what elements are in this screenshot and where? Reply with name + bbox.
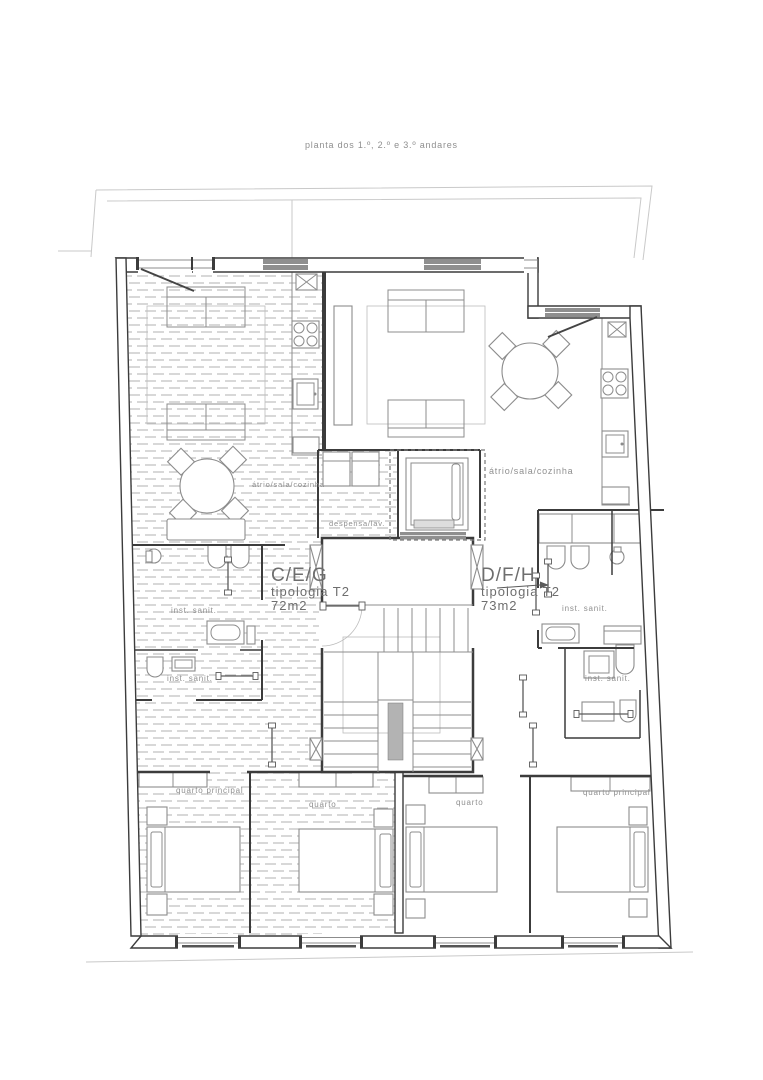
washbasin	[208, 545, 226, 568]
room-label-atrio-left: átrio/sala/cozinha	[252, 480, 325, 489]
window	[561, 934, 625, 949]
apartment-right-units: D/F/H	[481, 565, 536, 586]
room-label-inst-sanit: inst. sanit.	[171, 606, 217, 615]
nightstand	[374, 894, 393, 915]
nightstand	[406, 899, 425, 918]
stair-shaft	[388, 703, 403, 760]
toilet	[147, 657, 163, 677]
room-label-quarto-principal: quarto principal	[176, 786, 244, 795]
apartment-left-units: C/E/G	[271, 565, 328, 586]
apartment-right-area: 73m2	[481, 598, 518, 613]
apartment-right-typology: tipologia T2	[481, 584, 560, 599]
room-label-despensa: despensa/lav.	[329, 519, 385, 528]
cabinet-row	[539, 514, 641, 543]
nightstand	[147, 894, 167, 915]
sideboard	[167, 519, 245, 540]
dining-table	[489, 331, 572, 411]
toilet	[616, 645, 634, 674]
room-label-quarto: quarto	[456, 798, 483, 807]
room-label-atrio-right: átrio/sala/cozinha	[489, 466, 573, 476]
nightstand	[629, 899, 647, 917]
washbasin	[231, 545, 249, 568]
room-label-inst-sanit: inst. sanit.	[167, 674, 213, 683]
room-label-inst-sanit: inst. sanit.	[585, 674, 631, 683]
elevator-door	[414, 520, 454, 528]
window	[299, 934, 363, 949]
floor-plan-drawing: planta dos 1.º, 2.º e 3.º andares átrio/…	[0, 0, 763, 1080]
drawing-title: planta dos 1.º, 2.º e 3.º andares	[305, 140, 458, 150]
washbasin	[571, 546, 589, 569]
blueprint-page: planta dos 1.º, 2.º e 3.º andares átrio/…	[0, 0, 763, 1080]
nightstand	[374, 809, 393, 827]
nightstand	[147, 807, 167, 825]
bed	[406, 827, 497, 892]
window	[433, 934, 497, 949]
room-label-quarto-principal: quarto principal	[583, 788, 651, 797]
door-symbol	[530, 723, 537, 767]
nightstand	[629, 807, 647, 825]
cabinet	[334, 306, 352, 425]
room-label-inst-sanit: inst. sanit.	[562, 604, 608, 613]
sofa	[388, 290, 464, 332]
stair-core	[310, 532, 483, 772]
party-wall	[395, 772, 403, 933]
bed	[299, 829, 393, 892]
window	[175, 934, 241, 949]
bed	[147, 827, 240, 892]
door-symbol	[520, 675, 527, 717]
bedroom-right-principal	[557, 777, 650, 917]
sofa	[388, 400, 464, 437]
apartment-left-typology: tipologia T2	[271, 584, 350, 599]
elevator	[390, 450, 485, 540]
stove	[292, 321, 319, 348]
kitchen-counter	[601, 318, 630, 505]
washbasin	[547, 546, 565, 569]
room-label-quarto: quarto	[309, 800, 336, 809]
apartment-left-area: 72m2	[271, 598, 308, 613]
entry-door-right	[548, 317, 597, 337]
nightstand	[406, 805, 425, 824]
bathtub	[207, 621, 244, 644]
